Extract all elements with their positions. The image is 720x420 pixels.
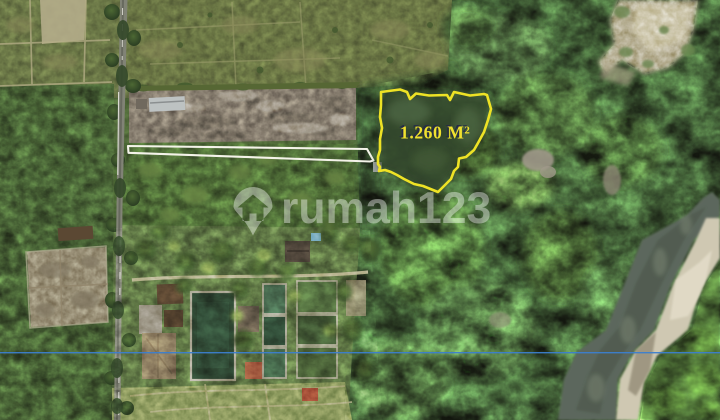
svg-text:rumah123: rumah123 [281,184,491,233]
